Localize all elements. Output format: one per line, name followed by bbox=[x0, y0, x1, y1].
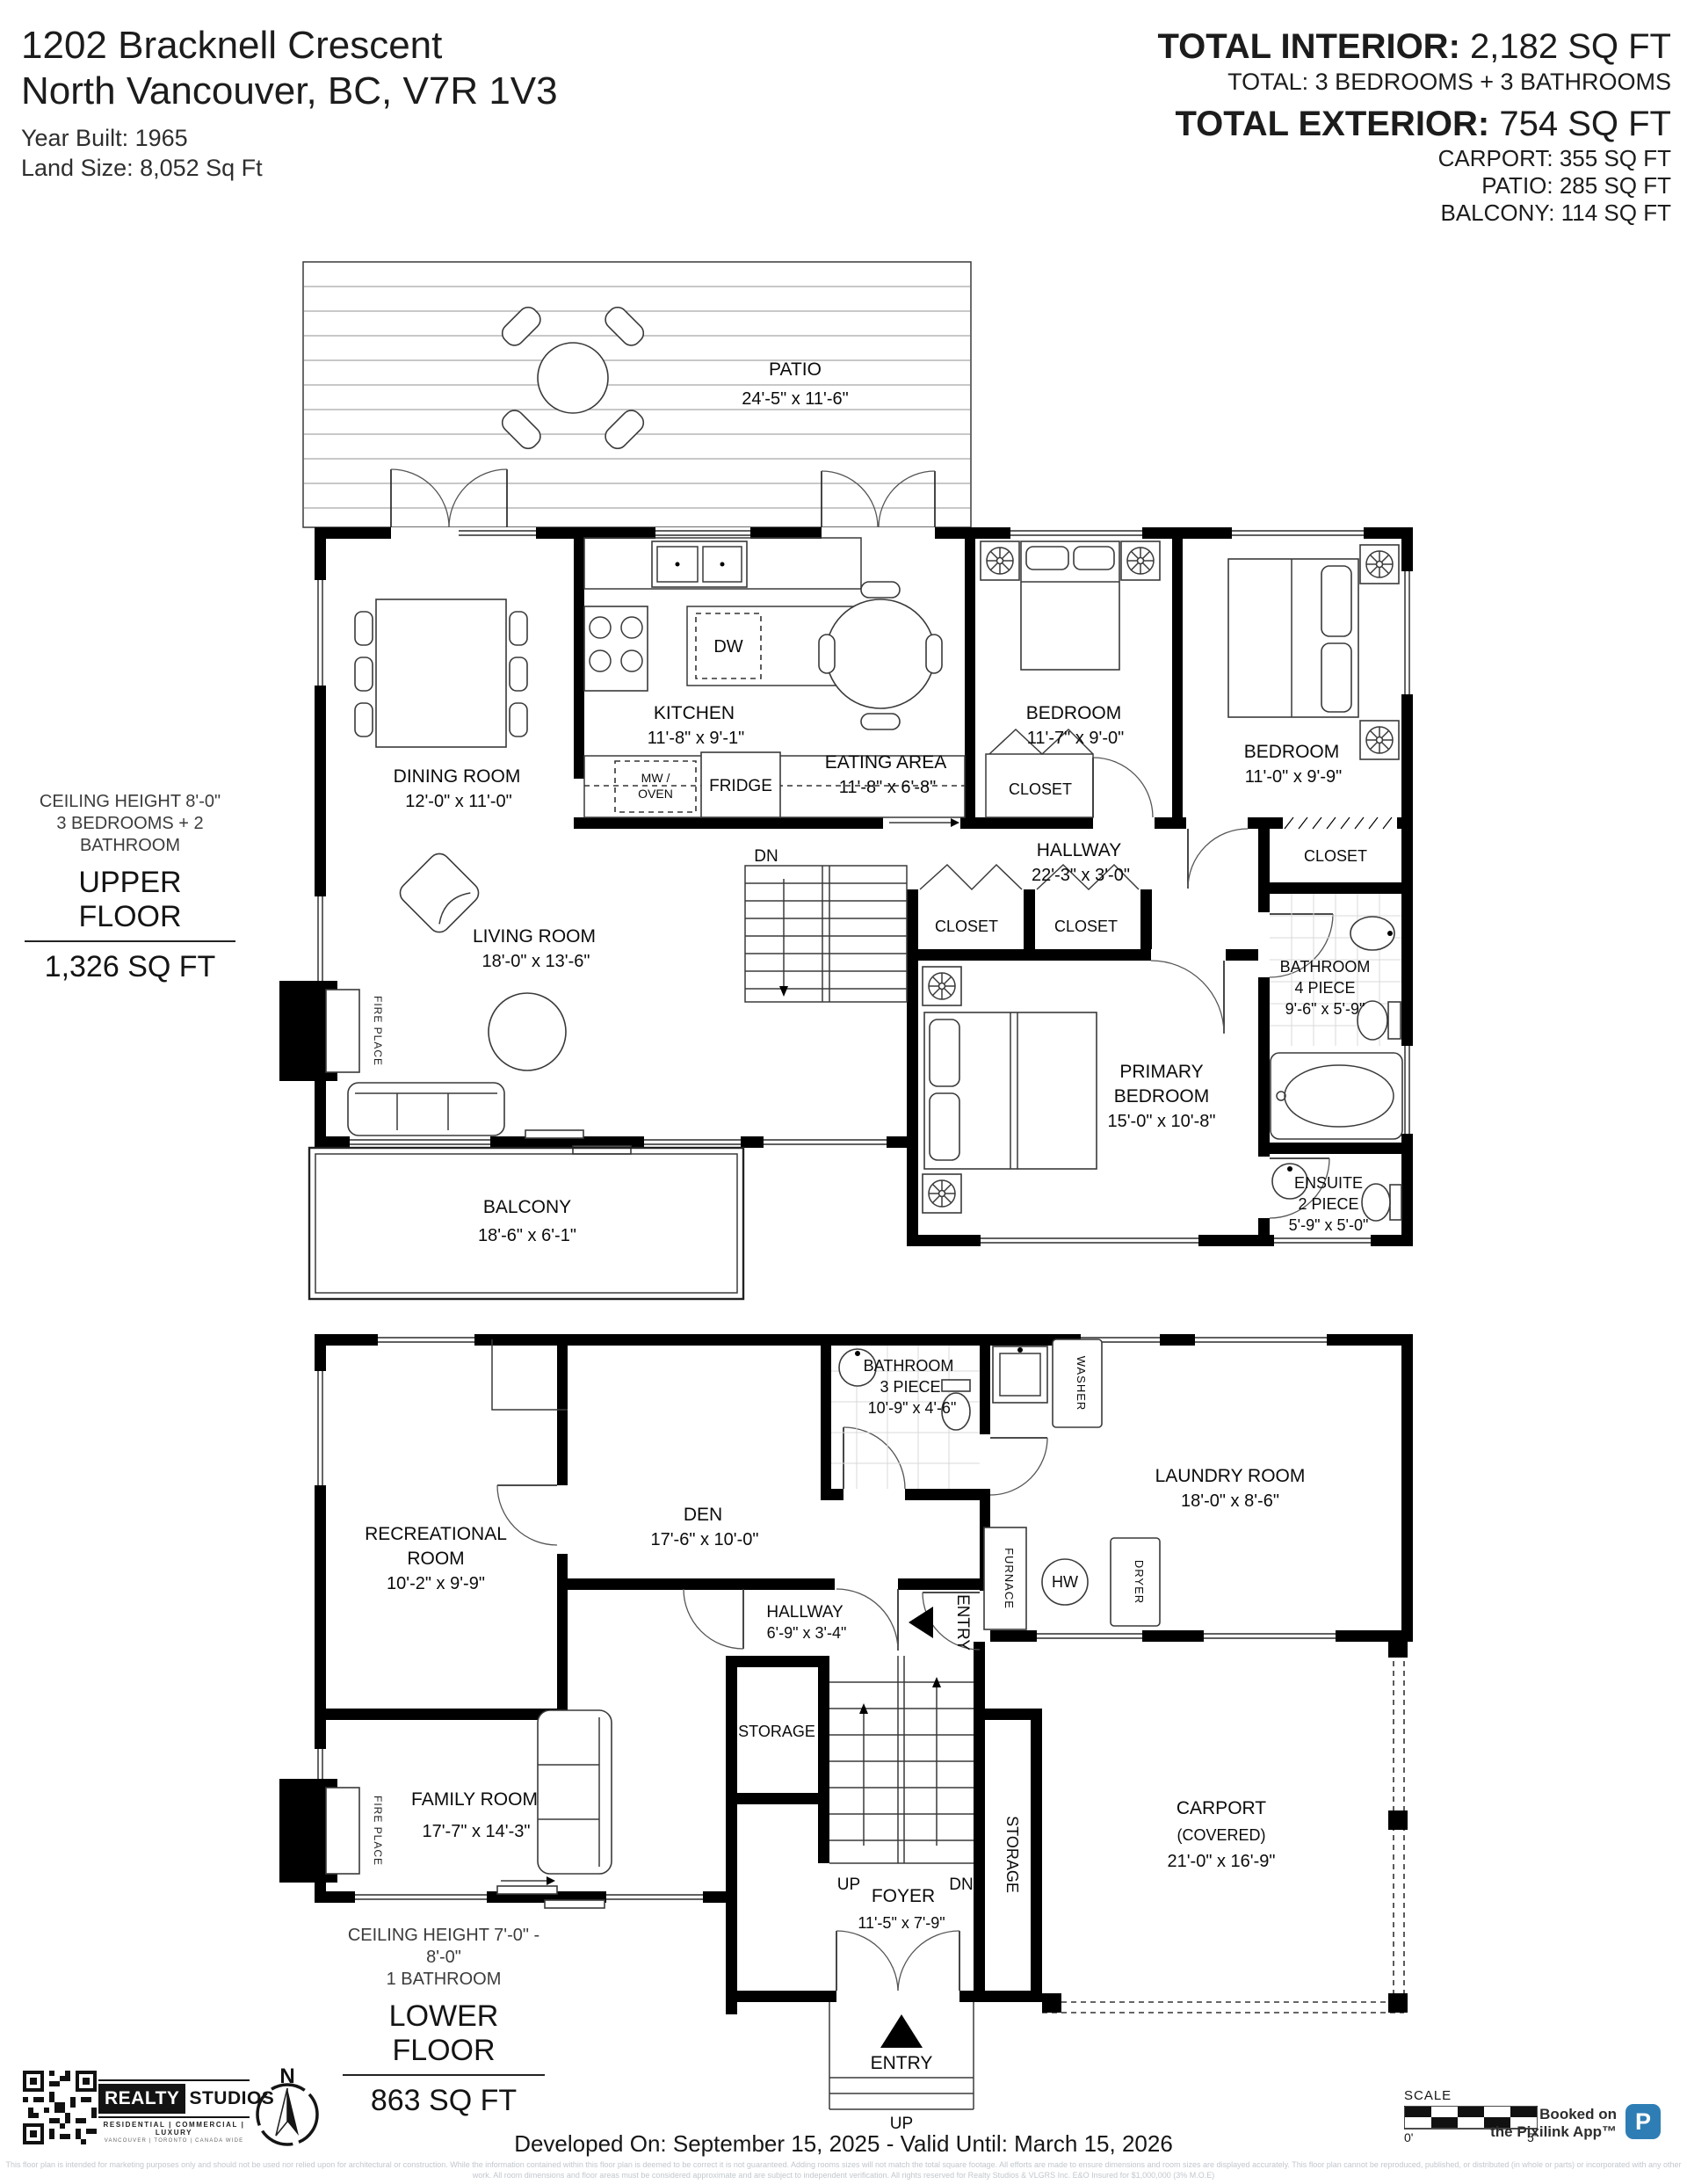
patio-deck: PATIO 24'-5" x 11'-6" bbox=[303, 262, 971, 527]
fireplace-upper: FIRE PLACE bbox=[279, 981, 384, 1081]
room-dims-bedroom-front: 11'-7" x 9'-0" bbox=[1027, 729, 1124, 748]
room-label-foyer: FOYER bbox=[872, 1886, 935, 1906]
storage-label: STORAGE bbox=[738, 1723, 815, 1740]
ceiling-fan-icon bbox=[981, 541, 1019, 580]
closet-label: CLOSET bbox=[1054, 918, 1118, 935]
room-type-bathroom-lower: 3 PIECE bbox=[880, 1378, 940, 1396]
coffee-table-icon bbox=[489, 993, 566, 1070]
room-label-laundry: LAUNDRY ROOM bbox=[1155, 1466, 1306, 1486]
bathtub-icon bbox=[1271, 1053, 1402, 1139]
room-label-carport: CARPORT bbox=[1177, 1798, 1266, 1818]
upper-staircase: DN bbox=[745, 847, 907, 1002]
sofa-icon bbox=[538, 1710, 612, 1874]
room-dims-kitchen: 11'-8" x 9'-1" bbox=[648, 729, 744, 748]
lower-walls bbox=[315, 1334, 1413, 2014]
patio-table-icon bbox=[498, 303, 648, 453]
bathroom-3pc: BATHROOM 3 PIECE 10'-9" x 4'-6" bbox=[831, 1346, 980, 1489]
upper-floor-plan: PATIO 24'-5" x 11'-6" bbox=[279, 262, 1413, 1299]
room-label-bedroom-front: BEDROOM bbox=[1026, 703, 1122, 723]
family-room: FAMILY ROOM 17'-7" x 14'-3" bbox=[411, 1710, 612, 1874]
room-dims-foyer: 11'-5" x 7'-9" bbox=[858, 1914, 945, 1932]
room-type-carport: (COVERED) bbox=[1177, 1826, 1265, 1844]
room-dims-bedroom-corner: 11'-0" x 9'-9" bbox=[1245, 767, 1342, 787]
room-dims-dining: 12'-0" x 11'-0" bbox=[405, 792, 512, 811]
stove-icon bbox=[584, 606, 648, 691]
ceiling-fan-icon bbox=[923, 967, 961, 1005]
room-label-patio: PATIO bbox=[769, 359, 822, 380]
svg-text:HW: HW bbox=[1052, 1573, 1078, 1591]
svg-text:FRIDGE: FRIDGE bbox=[709, 777, 772, 795]
room-dims-rec: 10'-2" x 9'-9" bbox=[387, 1574, 485, 1593]
bedroom-corner-furniture: CLOSET bbox=[1228, 545, 1399, 865]
room-label-dining: DINING ROOM bbox=[394, 766, 521, 787]
washer-icon: WASHER bbox=[1053, 1339, 1102, 1427]
svg-text:MW /: MW / bbox=[641, 771, 670, 785]
lower-floor-plan: RECREATIONAL ROOM 10'-2" x 9'-9" DEN 17'… bbox=[279, 1334, 1413, 2133]
balcony: BALCONY 18'-6" x 6'-1" bbox=[309, 1148, 743, 1299]
floor-plan-drawing: PATIO 24'-5" x 11'-6" bbox=[0, 0, 1687, 2184]
fridge-icon: FRIDGE bbox=[701, 752, 780, 817]
fireplace-label: FIRE PLACE bbox=[372, 996, 384, 1066]
room-label-primary-2: BEDROOM bbox=[1114, 1086, 1210, 1107]
entry-arrow-icon bbox=[880, 2014, 923, 2048]
room-label-hallway-lower: HALLWAY bbox=[766, 1603, 843, 1622]
room-dims-den: 17'-6" x 10'-0" bbox=[650, 1530, 758, 1549]
furnace-icon: FURNACE bbox=[984, 1527, 1026, 1629]
stairs-down-label: DN bbox=[754, 847, 778, 866]
hot-water-tank-icon: HW bbox=[1042, 1559, 1088, 1605]
logo-realty: REALTY bbox=[98, 2084, 185, 2114]
room-type-ensuite: 2 PIECE bbox=[1298, 1195, 1358, 1213]
dryer-icon: DRYER bbox=[1111, 1538, 1160, 1626]
compass-north-label: N bbox=[279, 2064, 294, 2088]
stairs-dn-label: DN bbox=[949, 1876, 973, 1894]
microwave-oven-icon: MW / OVEN bbox=[615, 761, 696, 812]
stairs-up-label: UP bbox=[837, 1876, 860, 1894]
room-label-family: FAMILY ROOM bbox=[411, 1789, 538, 1810]
primary-bedroom-furniture: PRIMARY BEDROOM 15'-0" x 10'-8" bbox=[923, 967, 1216, 1213]
ceiling-fan-icon bbox=[1360, 545, 1399, 584]
room-dims-carport: 21'-0" x 16'-9" bbox=[1167, 1852, 1275, 1871]
fireplace-lower: FIRE PLACE bbox=[279, 1779, 384, 1883]
laundry-room: WASHER FURNACE HW DRYER LAUNDRY ROOM 18'… bbox=[984, 1339, 1305, 1629]
sofa-icon bbox=[348, 1083, 504, 1136]
laundry-sink-icon bbox=[993, 1346, 1047, 1403]
room-dims-patio: 24'-5" x 11'-6" bbox=[742, 389, 849, 409]
side-entry-marker: ENTRY bbox=[909, 1594, 972, 1651]
room-type-bathroom-upper: 4 PIECE bbox=[1294, 979, 1355, 997]
room-label-hallway-upper: HALLWAY bbox=[1037, 840, 1121, 860]
room-dims-hallway-lower: 6'-9" x 3'-4" bbox=[767, 1624, 847, 1642]
pixilink-app-icon: P bbox=[1625, 2104, 1661, 2139]
room-label-bathroom-lower: BATHROOM bbox=[864, 1357, 954, 1375]
svg-text:OVEN: OVEN bbox=[638, 787, 673, 801]
front-entry: ENTRY UP bbox=[829, 2002, 974, 2133]
storage-vertical-label: STORAGE bbox=[1003, 1816, 1021, 1893]
lower-staircase: UP FOYER DN 11'-5" x 7'-9" bbox=[829, 1656, 974, 1932]
room-label-living: LIVING ROOM bbox=[473, 926, 596, 947]
room-label-den: DEN bbox=[684, 1505, 722, 1525]
carport: CARPORT (COVERED) 21'-0" x 16'-9" bbox=[1042, 1638, 1408, 2013]
scale-label: SCALE bbox=[1404, 2088, 1538, 2103]
room-dims-living: 18'-0" x 13'-6" bbox=[481, 952, 590, 971]
dining-table-icon bbox=[355, 599, 527, 747]
ceiling-fan-icon bbox=[1121, 541, 1160, 580]
svg-text:DRYER: DRYER bbox=[1133, 1560, 1146, 1604]
floor-plan-page: 1202 Bracknell Crescent North Vancouver,… bbox=[0, 0, 1687, 2184]
ensuite-2pc: ENSUITE 2 PIECE 5'-9" x 5'-0" bbox=[1272, 1164, 1401, 1234]
armchair-icon bbox=[396, 850, 483, 937]
ceiling-fan-icon bbox=[1360, 721, 1399, 759]
svg-text:FURNACE: FURNACE bbox=[1003, 1548, 1016, 1609]
disclaimer-line2: work. All room dimensions and floor area… bbox=[0, 2171, 1687, 2181]
svg-text:WASHER: WASHER bbox=[1075, 1356, 1088, 1411]
toilet-icon bbox=[1362, 1184, 1401, 1221]
room-dims-bathroom-lower: 10'-9" x 4'-6" bbox=[868, 1399, 957, 1417]
side-entry-label: ENTRY bbox=[953, 1594, 972, 1651]
disclaimer-line1: This floor plan is intended for marketin… bbox=[0, 2160, 1687, 2171]
closet-label: CLOSET bbox=[1009, 780, 1072, 798]
closet-label: CLOSET bbox=[1304, 847, 1367, 865]
svg-text:DW: DW bbox=[713, 637, 742, 657]
validity-line: Developed On: September 15, 2025 - Valid… bbox=[0, 2130, 1687, 2158]
bathroom-4pc: BATHROOM 4 PIECE 9'-6" x 5'-9" bbox=[1270, 894, 1402, 1139]
fireplace-label: FIRE PLACE bbox=[372, 1796, 384, 1866]
room-dims-hallway-upper: 22'-3" x 3'-0" bbox=[1032, 866, 1130, 885]
entry-label: ENTRY bbox=[871, 2053, 933, 2073]
living-room-furniture: LIVING ROOM 18'-0" x 13'-6" bbox=[348, 850, 596, 1136]
room-dims-laundry: 18'-0" x 8'-6" bbox=[1181, 1491, 1279, 1511]
closet-label: CLOSET bbox=[935, 918, 998, 935]
dishwasher-icon: DW bbox=[696, 613, 761, 678]
eating-table-icon bbox=[819, 582, 942, 729]
booked-on-text: Booked on the Pixilink App™ bbox=[1490, 2106, 1617, 2141]
room-dims-eating: 11'-8" x 6'-8" bbox=[839, 778, 936, 797]
bedroom-front-furniture: CLOSET bbox=[981, 541, 1160, 817]
room-label-ensuite: ENSUITE bbox=[1294, 1174, 1363, 1192]
room-label-rec-2: ROOM bbox=[407, 1549, 464, 1569]
room-dims-bathroom-upper: 9'-6" x 5'-9" bbox=[1285, 1000, 1365, 1018]
room-dims-balcony: 18'-6" x 6'-1" bbox=[478, 1226, 576, 1245]
room-label-kitchen: KITCHEN bbox=[654, 703, 735, 723]
room-label-rec-1: RECREATIONAL bbox=[365, 1524, 507, 1544]
room-label-primary-1: PRIMARY bbox=[1119, 1062, 1203, 1082]
ceiling-fan-icon bbox=[923, 1174, 961, 1213]
bathroom-sink-icon bbox=[1350, 917, 1394, 950]
room-label-bedroom-corner: BEDROOM bbox=[1244, 742, 1340, 762]
room-dims-primary: 15'-0" x 10'-8" bbox=[1107, 1112, 1215, 1131]
disclaimer: This floor plan is intended for marketin… bbox=[0, 2160, 1687, 2180]
scale-start: 0' bbox=[1404, 2130, 1413, 2144]
room-dims-family: 17'-7" x 14'-3" bbox=[422, 1822, 530, 1841]
room-label-eating: EATING AREA bbox=[825, 752, 946, 773]
room-label-balcony: BALCONY bbox=[483, 1197, 571, 1217]
kitchen-sink-icon bbox=[652, 541, 747, 587]
room-dims-ensuite: 5'-9" x 5'-0" bbox=[1289, 1216, 1369, 1234]
room-label-bathroom-upper: BATHROOM bbox=[1280, 958, 1371, 976]
